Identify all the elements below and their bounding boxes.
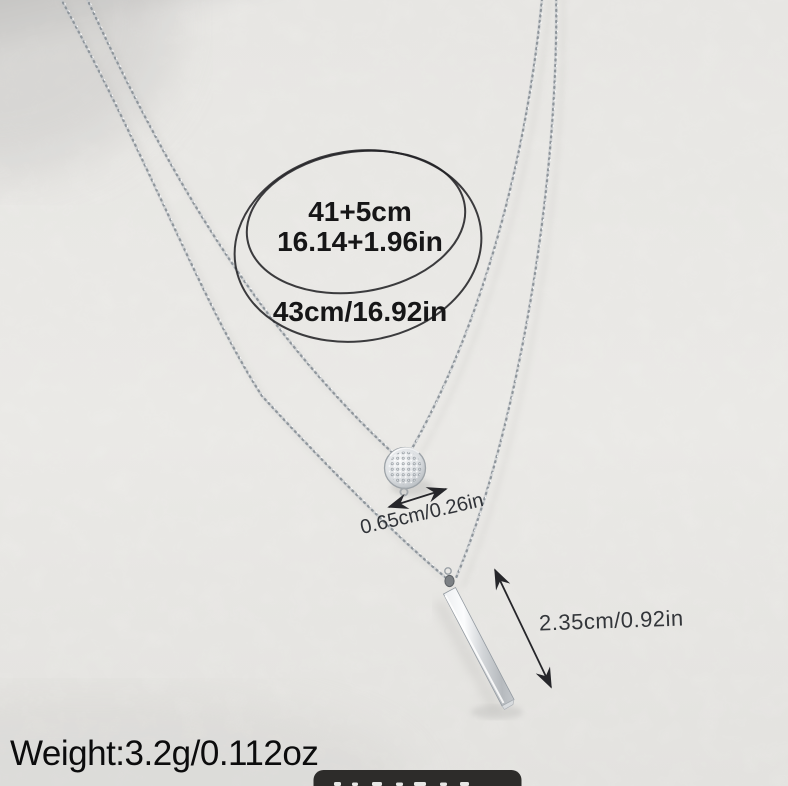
product-photo: 41+5cm 16.14+1.96in 43cm/16.92in 0.65cm/… (0, 0, 788, 786)
bar-length-label: 2.35cm/0.92in (539, 605, 685, 636)
watermark-badge (314, 770, 522, 786)
chain-length-label-cm: 41+5cm (258, 196, 462, 228)
necklace-scene (0, 0, 788, 786)
backdrop (0, 0, 788, 786)
bar-pendant-ground-shadow (471, 705, 523, 719)
outer-chain-length-label: 43cm/16.92in (258, 296, 462, 328)
disc-pendant-pave-stones (389, 452, 422, 485)
weight-label: Weight:3.2g/0.112oz (10, 734, 318, 774)
backdrop-paper-grain-texture (0, 0, 788, 786)
bar-pendant-bail (445, 575, 454, 586)
chain-length-label-in: 16.14+1.96in (258, 226, 462, 258)
